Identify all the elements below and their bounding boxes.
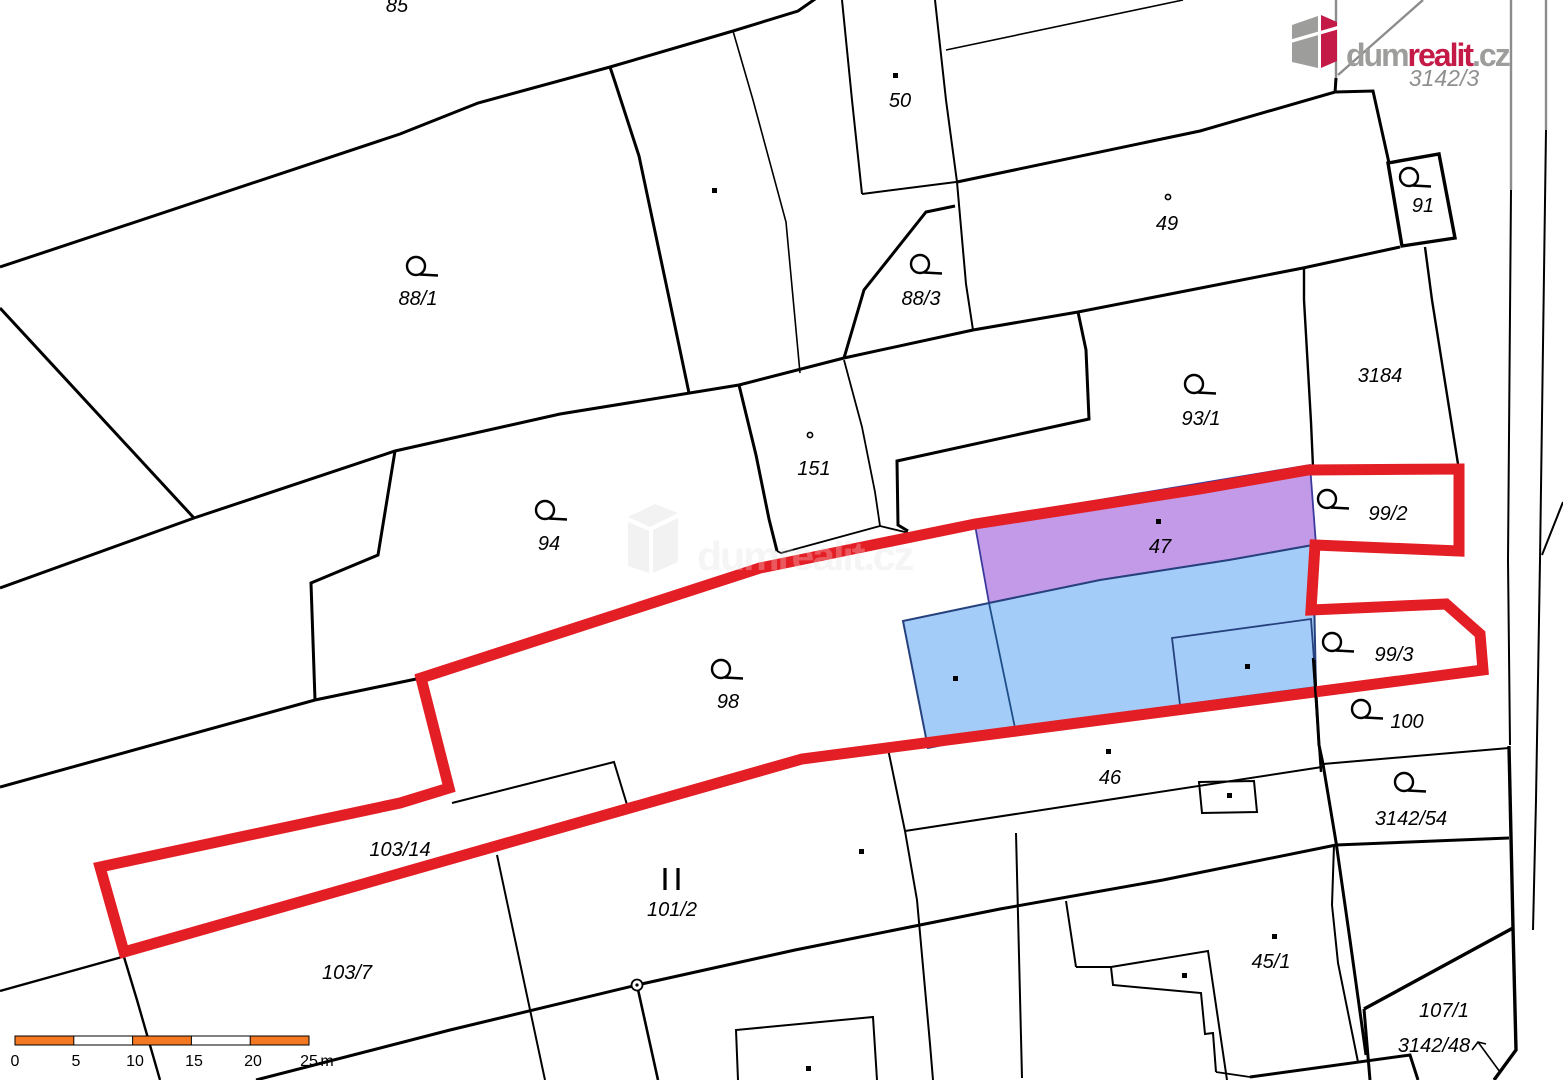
svg-text:103/14: 103/14	[369, 839, 430, 861]
svg-text:98: 98	[717, 691, 739, 713]
svg-text:20: 20	[244, 1053, 262, 1070]
svg-text:45/1: 45/1	[1252, 951, 1291, 973]
svg-text:dumrealit.cz: dumrealit.cz	[1346, 37, 1510, 73]
svg-text:49: 49	[1156, 213, 1178, 235]
svg-text:3142/48: 3142/48	[1398, 1035, 1470, 1057]
svg-text:85: 85	[386, 0, 409, 17]
svg-text:151: 151	[797, 458, 830, 480]
svg-text:25: 25	[300, 1053, 318, 1070]
svg-text:46: 46	[1099, 767, 1122, 789]
svg-text:47: 47	[1149, 536, 1172, 558]
svg-text:99/2: 99/2	[1369, 503, 1408, 525]
svg-text:94: 94	[538, 533, 560, 555]
svg-text:99/3: 99/3	[1375, 644, 1414, 666]
svg-text:15: 15	[185, 1053, 203, 1070]
svg-text:dumrealit.cz: dumrealit.cz	[697, 533, 914, 579]
svg-text:93/1: 93/1	[1182, 408, 1221, 430]
svg-text:91: 91	[1412, 195, 1434, 217]
svg-text:88/1: 88/1	[399, 288, 438, 310]
svg-text:103/7: 103/7	[322, 962, 373, 984]
svg-text:107/1: 107/1	[1419, 1000, 1469, 1022]
svg-text:0: 0	[11, 1053, 20, 1070]
svg-text:50: 50	[889, 90, 911, 112]
svg-text:5: 5	[72, 1053, 81, 1070]
svg-text:10: 10	[126, 1053, 144, 1070]
svg-text:m: m	[320, 1053, 333, 1070]
svg-text:3142/54: 3142/54	[1375, 808, 1447, 830]
svg-text:101/2: 101/2	[647, 899, 697, 921]
svg-text:3184: 3184	[1358, 365, 1403, 387]
svg-text:88/3: 88/3	[902, 288, 941, 310]
svg-text:100: 100	[1390, 711, 1423, 733]
